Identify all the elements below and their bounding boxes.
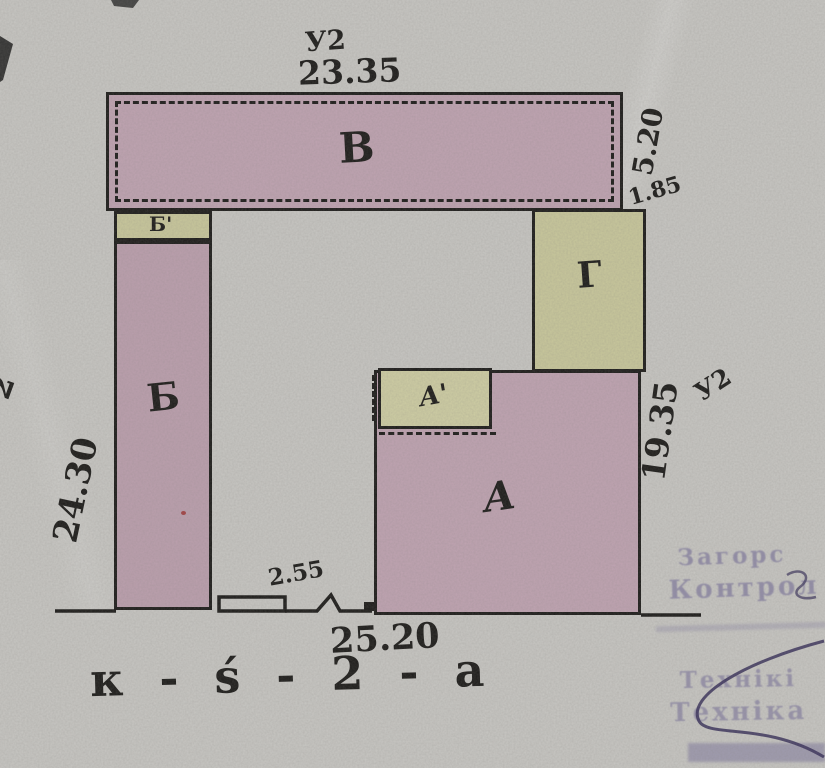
building-B1-label: Б' [149, 212, 172, 236]
stamp-smudge [656, 622, 825, 632]
building-B-col: Б [114, 241, 212, 610]
building-A1-label: А' [417, 379, 451, 414]
building-A1-dashed-bottom [379, 432, 496, 435]
fence-break-symbol [285, 595, 372, 611]
corner-marker [364, 602, 374, 611]
building-B: В [106, 92, 623, 211]
building-B1: Б' [114, 211, 212, 241]
stamp-control-line1: Загорс [677, 540, 819, 572]
building-A1-dashed-left [372, 375, 375, 421]
building-B-col-label: Б [145, 372, 182, 420]
building-B-label: В [338, 122, 376, 173]
scan-top-artifact [111, 0, 139, 8]
dim-right-a-height: 19.35 [633, 371, 687, 491]
stamp-tech: Технікі Техніка [679, 665, 807, 728]
stamp-bar [688, 743, 825, 762]
scanned-plan-page: В Б' Б Г А А' У2 23.35 5.20 1.85 24.30 2… [0, 0, 825, 768]
stamp-tech-line1: Технікі [679, 665, 806, 694]
dim-right-b-height: 5.20 [625, 103, 670, 180]
gate-step-rect [219, 597, 285, 611]
stamp-tech-line2: Техніка [670, 696, 807, 728]
dim-right-offset: 1.85 [625, 171, 684, 211]
marker-right: У2 [689, 362, 736, 407]
building-G: Г [532, 209, 646, 372]
stamp-control-line2: Контрол [668, 571, 820, 606]
scan-edge-artifact [0, 36, 13, 82]
building-A1: А' [378, 368, 492, 429]
marker-left: 2 [0, 370, 23, 404]
stamp-control: Загорс Контрол [677, 540, 820, 606]
building-A-label: А [480, 471, 519, 522]
dim-top-width: 23.35 [297, 50, 402, 93]
dim-gate-width: 2.55 [266, 555, 326, 591]
dim-left-height: 24.30 [44, 429, 107, 551]
red-ink-speck [181, 511, 186, 515]
plan-caption: к - ѕ́ - 2 - а [89, 643, 487, 707]
building-G-label: Г [576, 253, 604, 297]
